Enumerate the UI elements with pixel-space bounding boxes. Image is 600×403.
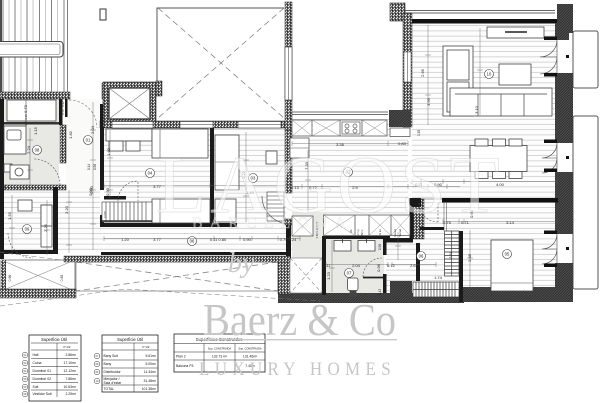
svg-text:3.14: 3.14 [506,220,515,225]
svg-text:101.38m²: 101.38m² [142,387,157,391]
svg-text:1.82: 1.82 [68,130,73,139]
svg-text:2.86m²: 2.86m² [65,353,76,357]
svg-text:0.96: 0.96 [8,275,12,282]
svg-text:Dormitori 02: Dormitori 02 [33,377,52,381]
svg-text:1.53: 1.53 [7,211,12,220]
svg-text:Vestidor Suit: Vestidor Suit [33,392,52,396]
svg-text:09: 09 [25,227,30,232]
svg-text:17.10m²: 17.10m² [64,361,77,365]
svg-text:2.24: 2.24 [26,145,31,154]
svg-text:2.25m²: 2.25m² [65,392,76,396]
svg-text:Superficie Útil: Superficie Útil [117,337,143,342]
svg-text:Hall: Hall [33,353,39,357]
svg-text:0.72: 0.72 [61,109,65,115]
svg-text:1.20: 1.20 [121,237,130,242]
svg-text:06: 06 [419,254,424,259]
svg-text:2.25: 2.25 [43,223,48,232]
svg-text:P 1/2: P 1/2 [64,345,71,349]
svg-text:Sala d'estar: Sala d'estar [104,381,123,385]
svg-text:0.72: 0.72 [387,263,396,268]
svg-text:Distribuidor: Distribuidor [104,370,122,374]
svg-text:0.35: 0.35 [417,130,421,137]
svg-text:Sup. CONSTRUIDA: Sup. CONSTRUIDA [238,347,261,351]
svg-text:0.11: 0.11 [324,264,331,268]
svg-text:2.48: 2.48 [467,253,472,262]
svg-text:Micro: Micro [360,229,364,236]
svg-text:0.90: 0.90 [88,187,93,196]
svg-text:0.56: 0.56 [93,164,97,170]
svg-text:0.070: 0.070 [103,211,107,218]
svg-text:Sup. CONSTRUIDA: Sup. CONSTRUIDA [208,347,231,351]
svg-text:Balcona P3: Balcona P3 [176,364,193,368]
svg-text:by: by [228,248,255,279]
svg-text:3.10: 3.10 [474,105,479,114]
svg-text:0.11 0.80: 0.11 0.80 [210,237,227,242]
svg-text:0.56: 0.56 [378,244,382,250]
svg-text:LUXURY HOMES: LUXURY HOMES [199,359,396,380]
svg-text:1.74: 1.74 [434,275,443,280]
svg-text:0.90: 0.90 [243,237,252,242]
svg-text:06: 06 [190,239,195,244]
svg-text:131.46m²: 131.46m² [243,355,258,359]
svg-text:P 1/2: P 1/2 [143,345,150,349]
svg-text:BARCELONA: BARCELONA [192,215,353,232]
svg-text:08: 08 [35,148,40,153]
svg-text:1.62: 1.62 [106,147,111,156]
svg-text:12.12m²: 12.12m² [64,369,77,373]
svg-text:Suit: Suit [33,385,39,389]
svg-text:0.75 0.24: 0.75 0.24 [280,237,297,242]
svg-text:07: 07 [347,271,352,276]
svg-text:132.73 m²: 132.73 m² [212,355,228,359]
svg-text:0.90: 0.90 [105,187,110,196]
svg-text:2.04: 2.04 [352,263,361,268]
svg-text:04: 04 [148,171,153,176]
svg-text:0.92: 0.92 [60,275,64,282]
svg-text:31.48m²: 31.48m² [144,379,157,383]
svg-text:10: 10 [487,72,492,77]
svg-text:Baerz & Co: Baerz & Co [203,295,396,345]
svg-text:TOTAL: TOTAL [104,387,115,391]
svg-text:05: 05 [505,252,510,257]
svg-text:5.00m²: 5.00m² [145,362,156,366]
svg-text:0.14: 0.14 [87,164,91,170]
svg-text:Superficie Útil: Superficie Útil [41,337,67,342]
svg-text:11.34m²: 11.34m² [144,370,157,374]
svg-text:7.86m²: 7.86m² [65,377,76,381]
svg-text:Dormitori 01: Dormitori 01 [33,369,52,373]
svg-text:Bany Suit: Bany Suit [104,354,119,358]
svg-text:Cuina: Cuina [33,361,42,365]
svg-text:01: 01 [86,138,91,143]
svg-text:15.34: 15.34 [449,252,453,260]
svg-text:0.73: 0.73 [23,104,28,113]
svg-text:10.63m²: 10.63m² [64,385,77,389]
svg-text:1.15: 1.15 [33,126,38,135]
svg-text:5.61m²: 5.61m² [145,354,156,358]
svg-text:2.04: 2.04 [90,125,95,134]
svg-text:0.96: 0.96 [376,263,381,272]
svg-text:Bany: Bany [104,362,112,366]
svg-text:1.23: 1.23 [326,271,331,280]
svg-text:0.55 0.95: 0.55 0.95 [24,114,28,126]
svg-text:0.22: 0.22 [61,101,65,107]
svg-text:Plan 2: Plan 2 [176,355,186,359]
svg-text:3.77: 3.77 [153,237,162,242]
svg-text:3.99: 3.99 [426,97,431,106]
svg-text:2.66: 2.66 [420,68,425,77]
svg-text:3.20: 3.20 [64,205,69,214]
svg-text:2.61: 2.61 [410,263,419,268]
